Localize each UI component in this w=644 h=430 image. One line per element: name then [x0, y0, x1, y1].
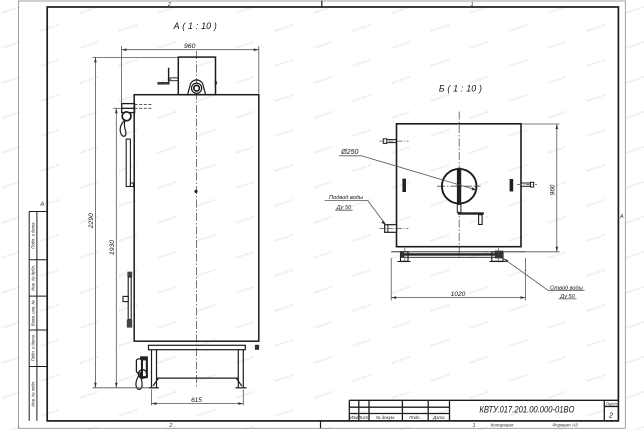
svg-text:Лист: Лист: [357, 415, 369, 420]
svg-text:Подп. и дата: Подп. и дата: [31, 334, 36, 361]
svg-text:2: 2: [608, 413, 613, 420]
svg-text:Лист: Лист: [605, 401, 617, 406]
svg-text:А: А: [39, 202, 44, 208]
svg-text:Копировал: Копировал: [491, 423, 514, 428]
svg-text:Б ( 1 : 10 ): Б ( 1 : 10 ): [439, 84, 482, 94]
svg-text:КВТУ.017.201.00.000-01ВО: КВТУ.017.201.00.000-01ВО: [479, 404, 574, 414]
svg-text:1: 1: [470, 2, 473, 8]
svg-text:А ( 1 : 10 ): А ( 1 : 10 ): [173, 21, 217, 31]
svg-text:Взам. инв. №: Взам. инв. №: [31, 300, 36, 326]
svg-text:1: 1: [472, 423, 475, 429]
svg-text:2290: 2290: [88, 213, 95, 229]
svg-text:Ø250: Ø250: [340, 149, 358, 156]
svg-text:Инв. № подл.: Инв. № подл.: [31, 381, 36, 407]
svg-text:2: 2: [168, 423, 172, 429]
svg-text:2: 2: [167, 2, 171, 8]
svg-text:Подп.: Подп.: [409, 415, 420, 420]
svg-text:Формат А3: Формат А3: [552, 423, 578, 428]
svg-text:А: А: [619, 214, 624, 220]
svg-text:1930: 1930: [109, 240, 116, 255]
svg-text:№ докум.: № докум.: [376, 415, 395, 420]
svg-text:Изм: Изм: [350, 415, 358, 420]
svg-text:960: 960: [550, 184, 557, 195]
svg-text:Подп. и дата: Подп. и дата: [31, 222, 36, 249]
svg-text:960: 960: [184, 43, 196, 50]
svg-text:1020: 1020: [451, 291, 466, 298]
svg-text:Дата: Дата: [432, 415, 445, 420]
svg-text:Инв. № дубл.: Инв. № дубл.: [31, 265, 36, 291]
svg-text:615: 615: [191, 397, 202, 404]
